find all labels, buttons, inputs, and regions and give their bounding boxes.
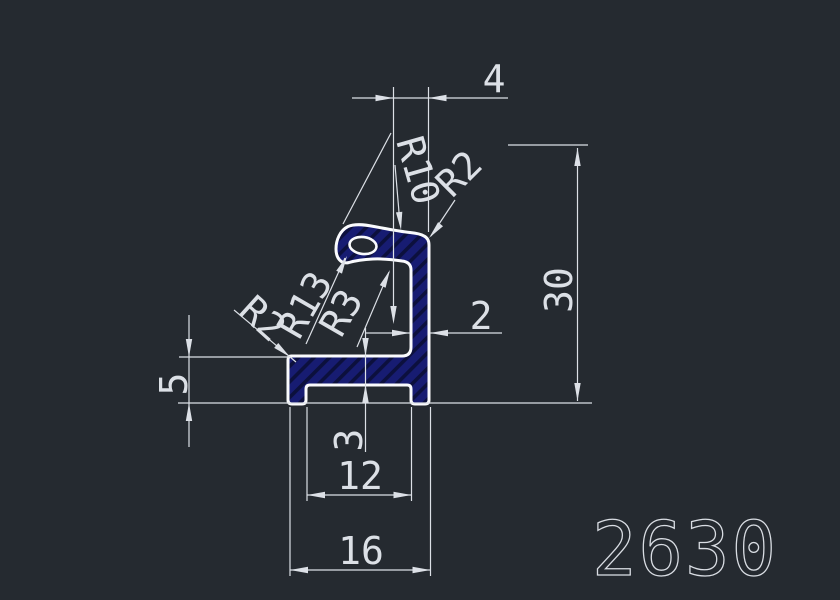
part-number: 2630 bbox=[592, 505, 778, 593]
dim-label-12: 12 bbox=[337, 454, 383, 498]
dim-label-5: 5 bbox=[152, 373, 196, 396]
dim-label-2: 2 bbox=[470, 294, 493, 338]
dim-label-16: 16 bbox=[338, 529, 384, 573]
cad-viewport: 4 30 5 3 12 16 bbox=[0, 0, 840, 600]
cad-drawing: 4 30 5 3 12 16 bbox=[0, 0, 840, 600]
dim-label-30: 30 bbox=[537, 267, 581, 313]
dim-label-4: 4 bbox=[483, 57, 506, 101]
dim-label-3: 3 bbox=[327, 429, 371, 452]
